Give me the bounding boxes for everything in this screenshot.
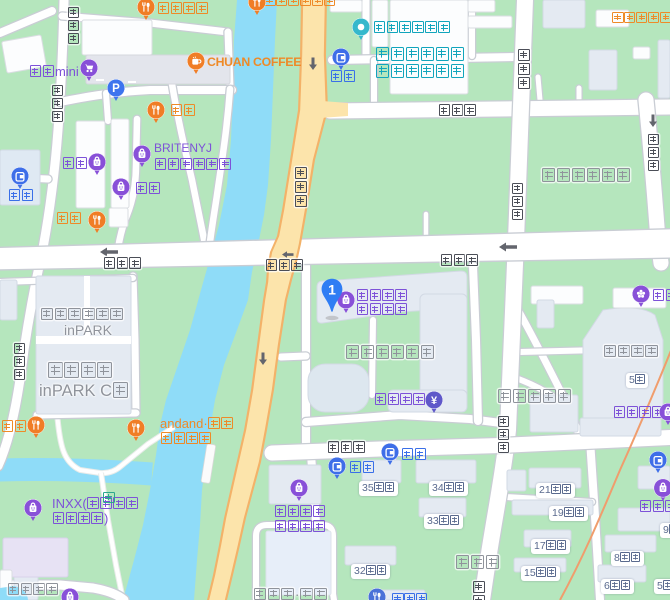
svg-text:1: 1 [328,281,336,297]
svg-text:¥: ¥ [431,395,438,407]
svg-text:P: P [112,83,120,95]
